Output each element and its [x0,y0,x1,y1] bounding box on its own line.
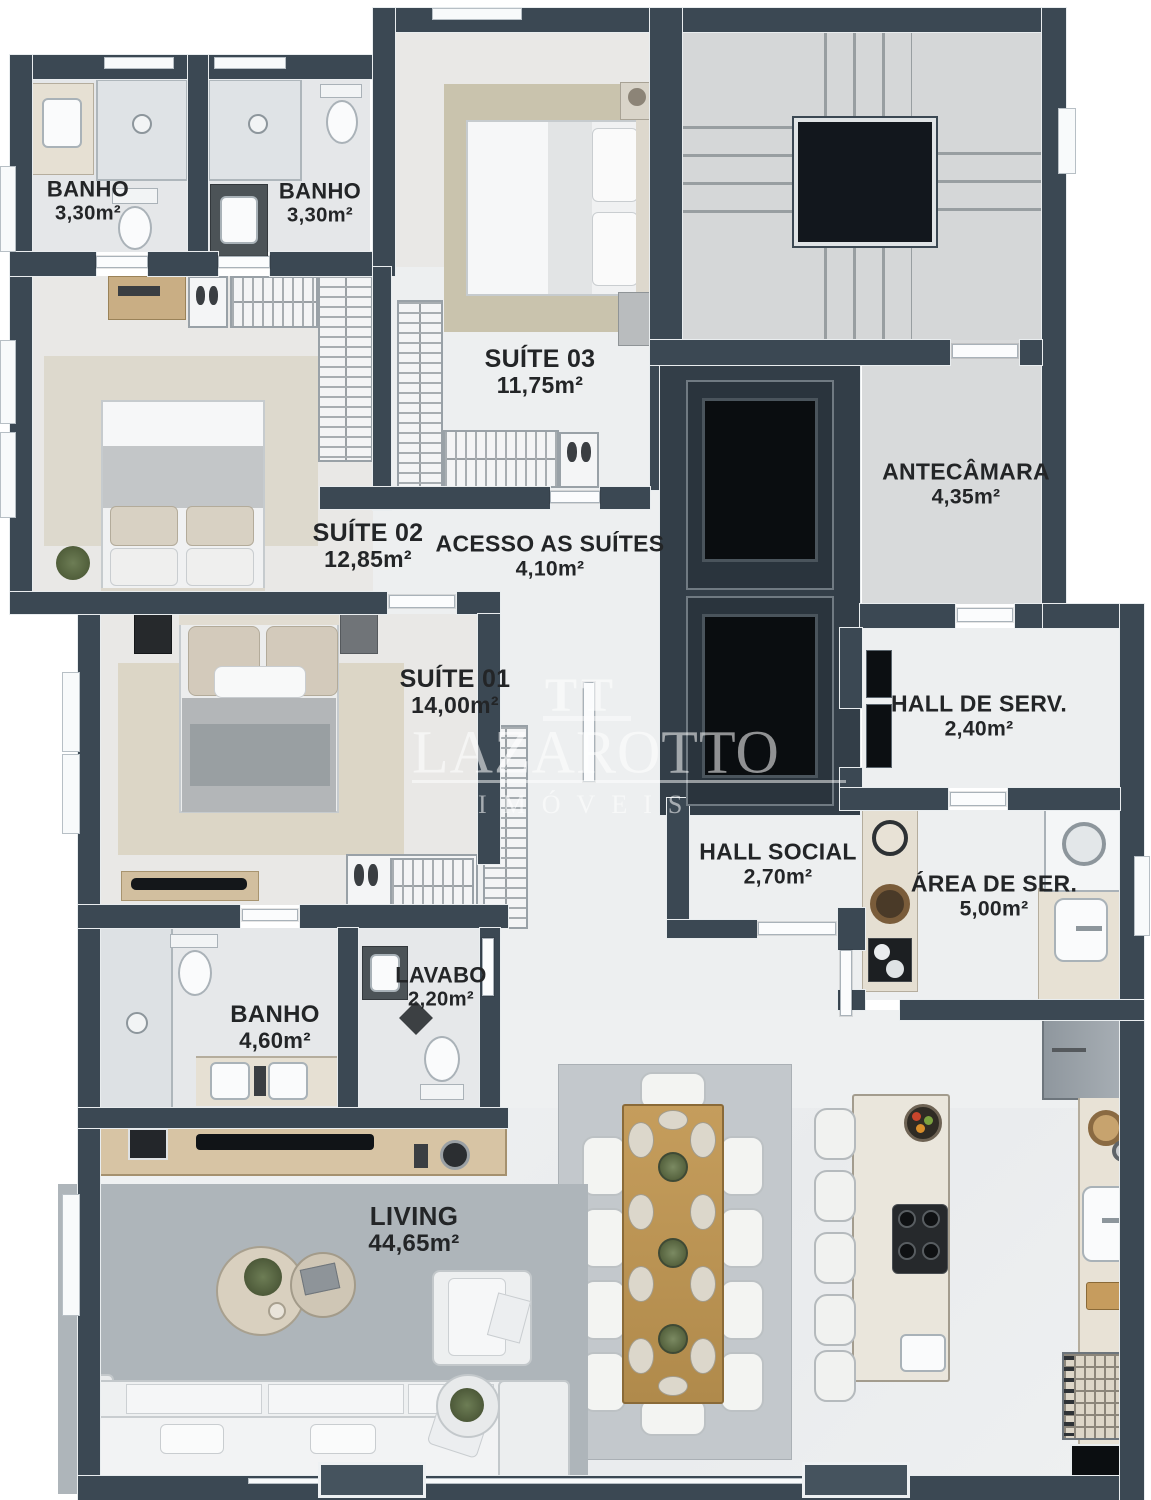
suite01-tv-bar [131,878,247,890]
bar-stool [814,1108,856,1160]
bar-stool [814,1170,856,1222]
burner [898,1242,916,1260]
room-name: LAVABO [395,963,486,988]
washer-drum [1062,822,1106,866]
stair-treads-right [936,152,1042,218]
room-area: 12,85m² [313,547,424,573]
door-suite02 [389,595,455,608]
banho-master-toilet-tank [170,934,218,948]
elevator-cab [702,614,818,778]
wall [457,592,500,614]
suite01-nightstand [340,614,378,654]
wall [1020,340,1042,365]
room-label-antecamara: ANTECÂMARA 4,35m² [882,459,1050,508]
stair-treads-top [824,32,912,120]
window [0,340,16,424]
bath2-shower-head [248,114,268,134]
wall [373,267,391,510]
door-corridor [583,682,595,782]
window [0,166,16,252]
room-area: 3,30m² [47,202,129,225]
bar-stool [814,1350,856,1402]
suite02-pillow [186,506,254,546]
window [214,57,286,69]
wall [840,768,862,788]
suite02-pillow [110,548,178,586]
bath2-sink [220,196,258,244]
wall [900,1000,1144,1020]
banho-master-soap-tray [254,1066,266,1096]
room-name: ACESSO AS SUÍTES [436,531,665,557]
placemat [628,1194,654,1230]
room-label-area-servico: ÁREA DE SER. 5,00m² [911,871,1077,920]
wall [10,592,387,614]
room-label-lavabo: LAVABO 2,20m² [395,963,486,1010]
door-bath1 [96,256,148,268]
wall [10,55,32,614]
wall [78,905,240,928]
room-area: 2,70m² [699,865,856,889]
dining-chair [582,1352,626,1412]
sofa-pillow [310,1424,376,1454]
suite03-wardrobe [397,300,443,488]
suite03-pillow [592,212,638,286]
sofa-pillow [160,1424,224,1454]
burner [922,1242,940,1260]
room-area: 14,00m² [400,693,511,719]
laundry-faucet [1076,926,1102,931]
door-suite03 [550,491,600,503]
floor-plan: BANHO 3,30m² BANHO 3,30m² SUÍTE 03 11,75… [0,0,1151,1500]
room-name: SUÍTE 03 [485,345,596,373]
dining-chair [720,1136,764,1196]
wall [300,905,508,928]
wall [148,252,218,276]
dining-chair [582,1136,626,1196]
bath2-toilet-tank [320,84,362,98]
room-label-suite01: SUÍTE 01 14,00m² [400,665,511,719]
room-label-hall-servico: HALL DE SERV. 2,40m² [891,691,1067,740]
dining-chair [720,1280,764,1340]
balcony-planter [318,1462,426,1498]
elevator-cab [702,398,818,562]
room-name: ANTECÂMARA [882,459,1050,485]
island-sink [900,1334,946,1372]
duct-shaft [866,650,892,698]
door-stair-antecamara [952,344,1018,358]
dining-chair [582,1280,626,1340]
wall [838,908,865,950]
wall [840,628,862,708]
window [0,432,16,518]
suite03-pillow [592,128,638,202]
fridge-handle [1052,1048,1086,1052]
wall [1120,604,1144,1500]
door-area-servico [950,792,1006,806]
window [62,754,80,834]
room-name: SUÍTE 01 [400,665,511,693]
room-name: HALL DE SERV. [891,691,1067,717]
lavabo-toilet-tank [420,1084,464,1100]
balcony-planter [802,1462,910,1498]
placemat [628,1122,654,1158]
dining-chair [582,1208,626,1268]
bath1-sink [42,98,82,148]
bar-stool [814,1232,856,1284]
stair-treads-left [682,126,794,218]
suite02-shelf [108,276,186,320]
suite02-closet [230,276,318,328]
wall [478,614,500,864]
suite03-lamp [628,88,646,106]
floor-hall-social [682,788,862,1010]
cutting-board [1086,1282,1122,1310]
placemat [628,1266,654,1302]
room-area: 4,60m² [230,1029,320,1054]
shoe-pair [209,286,218,305]
room-name: LIVING [368,1202,459,1231]
ottoman-plant [450,1388,484,1422]
coffee-table-cup [268,1302,286,1320]
sofa-cushion [268,1384,404,1414]
bowl [870,884,910,924]
door-entry [758,922,836,935]
wall [320,487,550,509]
centerpiece-plant [658,1152,688,1182]
stair-shaft [794,118,936,246]
window [104,57,174,69]
window [1134,856,1150,936]
door-kitchen [840,950,852,1016]
room-area: 2,40m² [891,717,1067,741]
placemat [658,1110,688,1130]
photo-frame [128,1128,168,1160]
room-label-banho-master: BANHO 4,60m² [230,1002,320,1054]
room-name: SUÍTE 02 [313,519,424,547]
fruit [912,1112,921,1121]
fruit [924,1116,933,1125]
dish-rack [872,820,908,856]
room-name: BANHO [47,177,129,202]
room-name: BANHO [279,179,361,204]
wall [667,798,689,938]
door-banho-master [242,909,298,921]
room-area: 11,75m² [485,373,596,399]
bath2-toilet-bowl [326,100,358,144]
suite02-pillow [110,506,178,546]
suite02-pillow [186,548,254,586]
suite02-bed-top [103,402,263,446]
wall [78,612,100,1500]
fruit [916,1124,925,1133]
centerpiece-plant [658,1324,688,1354]
banho-master-toilet-bowl [178,950,212,996]
shoe-pair [196,286,205,305]
fruit-bowl [904,1104,942,1142]
sofa-cushion [126,1384,262,1414]
placemat [690,1194,716,1230]
wall [338,928,358,1108]
banho-master-shower-head [126,1012,148,1034]
suite02-wardrobe [318,274,373,462]
tv [196,1134,374,1150]
placemat [658,1376,688,1396]
room-name: BANHO [230,1002,320,1029]
window [62,672,80,752]
banho-master-sink [210,1062,250,1100]
burner [898,1210,916,1228]
placemat [690,1266,716,1302]
room-area: 44,65m² [368,1231,459,1258]
room-label-hall-social: HALL SOCIAL 2,70m² [699,839,856,888]
shoe-pair [354,864,364,886]
pot [874,944,890,960]
wall [10,252,96,276]
decor-tray [440,1140,470,1170]
decor-item [414,1144,428,1168]
door-hall-servico [957,608,1013,622]
window [62,1194,80,1316]
suite02-plant [56,546,90,580]
door-bath2 [218,256,270,268]
suite03-bed-throw [548,122,592,294]
suite01-nightstand [134,614,172,654]
shoe-pair [368,864,378,886]
wall [1008,788,1120,810]
room-label-suite03: SUÍTE 03 11,75m² [485,345,596,399]
room-label-banho-suite02: BANHO 3,30m² [47,177,129,224]
room-area: 4,10m² [436,557,665,581]
corridor-shoe-shelf [559,432,599,488]
suite01-throw [190,724,330,786]
dining-chair [720,1208,764,1268]
wall [860,604,955,628]
wall [650,340,950,365]
stair-treads-bottom [824,244,912,340]
coffee-table-plant [244,1258,282,1296]
wall [840,788,948,810]
suite02-bed-band [103,446,263,508]
shoe-pair [581,442,591,462]
corridor-wardrobe [443,430,559,488]
suite01-pillow-white [214,666,306,698]
suite02-shelf-item [118,286,160,296]
bar-stool [814,1294,856,1346]
banho-master-sink [268,1062,308,1100]
wall [667,920,757,938]
wall [600,487,650,509]
room-name: HALL SOCIAL [699,839,856,865]
room-name: ÁREA DE SER. [911,871,1077,897]
duct-shaft [866,704,892,768]
grill-knobs [1064,1356,1074,1436]
wall [78,1108,508,1128]
pot [886,960,904,978]
shoe-pair [567,442,577,462]
room-label-banho-suite03: BANHO 3,30m² [279,179,361,226]
window [432,8,522,20]
window [1058,108,1076,174]
suite01-headboard [179,613,339,625]
wall [1042,8,1066,628]
wall [188,55,208,276]
lavabo-toilet-bowl [424,1036,460,1082]
bath1-shower-head [132,114,152,134]
placemat [690,1122,716,1158]
wall [1015,604,1042,628]
wall [373,8,395,276]
room-label-acesso: ACESSO AS SUÍTES 4,10m² [436,531,665,580]
room-label-living: LIVING 44,65m² [368,1202,459,1258]
burner [922,1210,940,1228]
centerpiece-plant [658,1238,688,1268]
room-area: 5,00m² [911,897,1077,921]
placemat [628,1338,654,1374]
room-area: 3,30m² [279,204,361,227]
room-area: 4,35m² [882,485,1050,509]
suite02-shoe-shelf [188,276,228,328]
dining-chair [720,1352,764,1412]
room-label-suite02: SUÍTE 02 12,85m² [313,519,424,573]
room-area: 2,20m² [395,988,486,1011]
placemat [690,1338,716,1374]
